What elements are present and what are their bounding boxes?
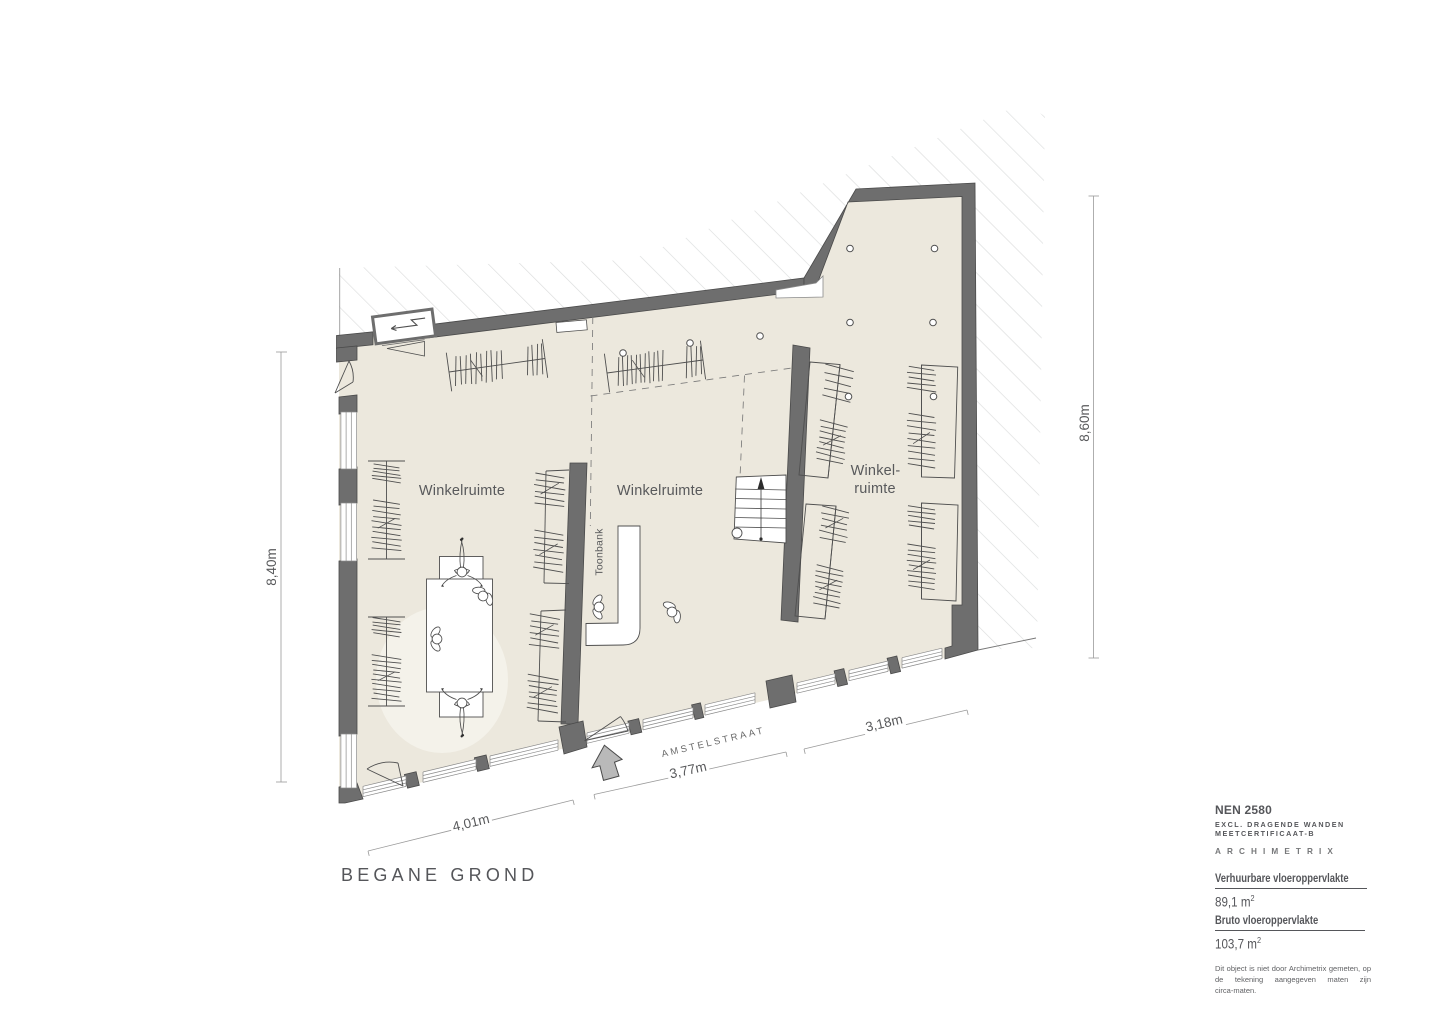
- svg-text:Winkelruimte: Winkelruimte: [419, 483, 505, 499]
- svg-text:BEGANE GROND: BEGANE GROND: [341, 865, 538, 885]
- svg-text:8,60m: 8,60m: [1077, 404, 1092, 442]
- svg-text:Toonbank: Toonbank: [594, 528, 606, 576]
- svg-text:Winkelruimte: Winkelruimte: [617, 483, 703, 499]
- svg-text:ruimte: ruimte: [854, 481, 896, 497]
- svg-text:Winkel-: Winkel-: [851, 463, 901, 479]
- svg-text:8,40m: 8,40m: [264, 548, 279, 586]
